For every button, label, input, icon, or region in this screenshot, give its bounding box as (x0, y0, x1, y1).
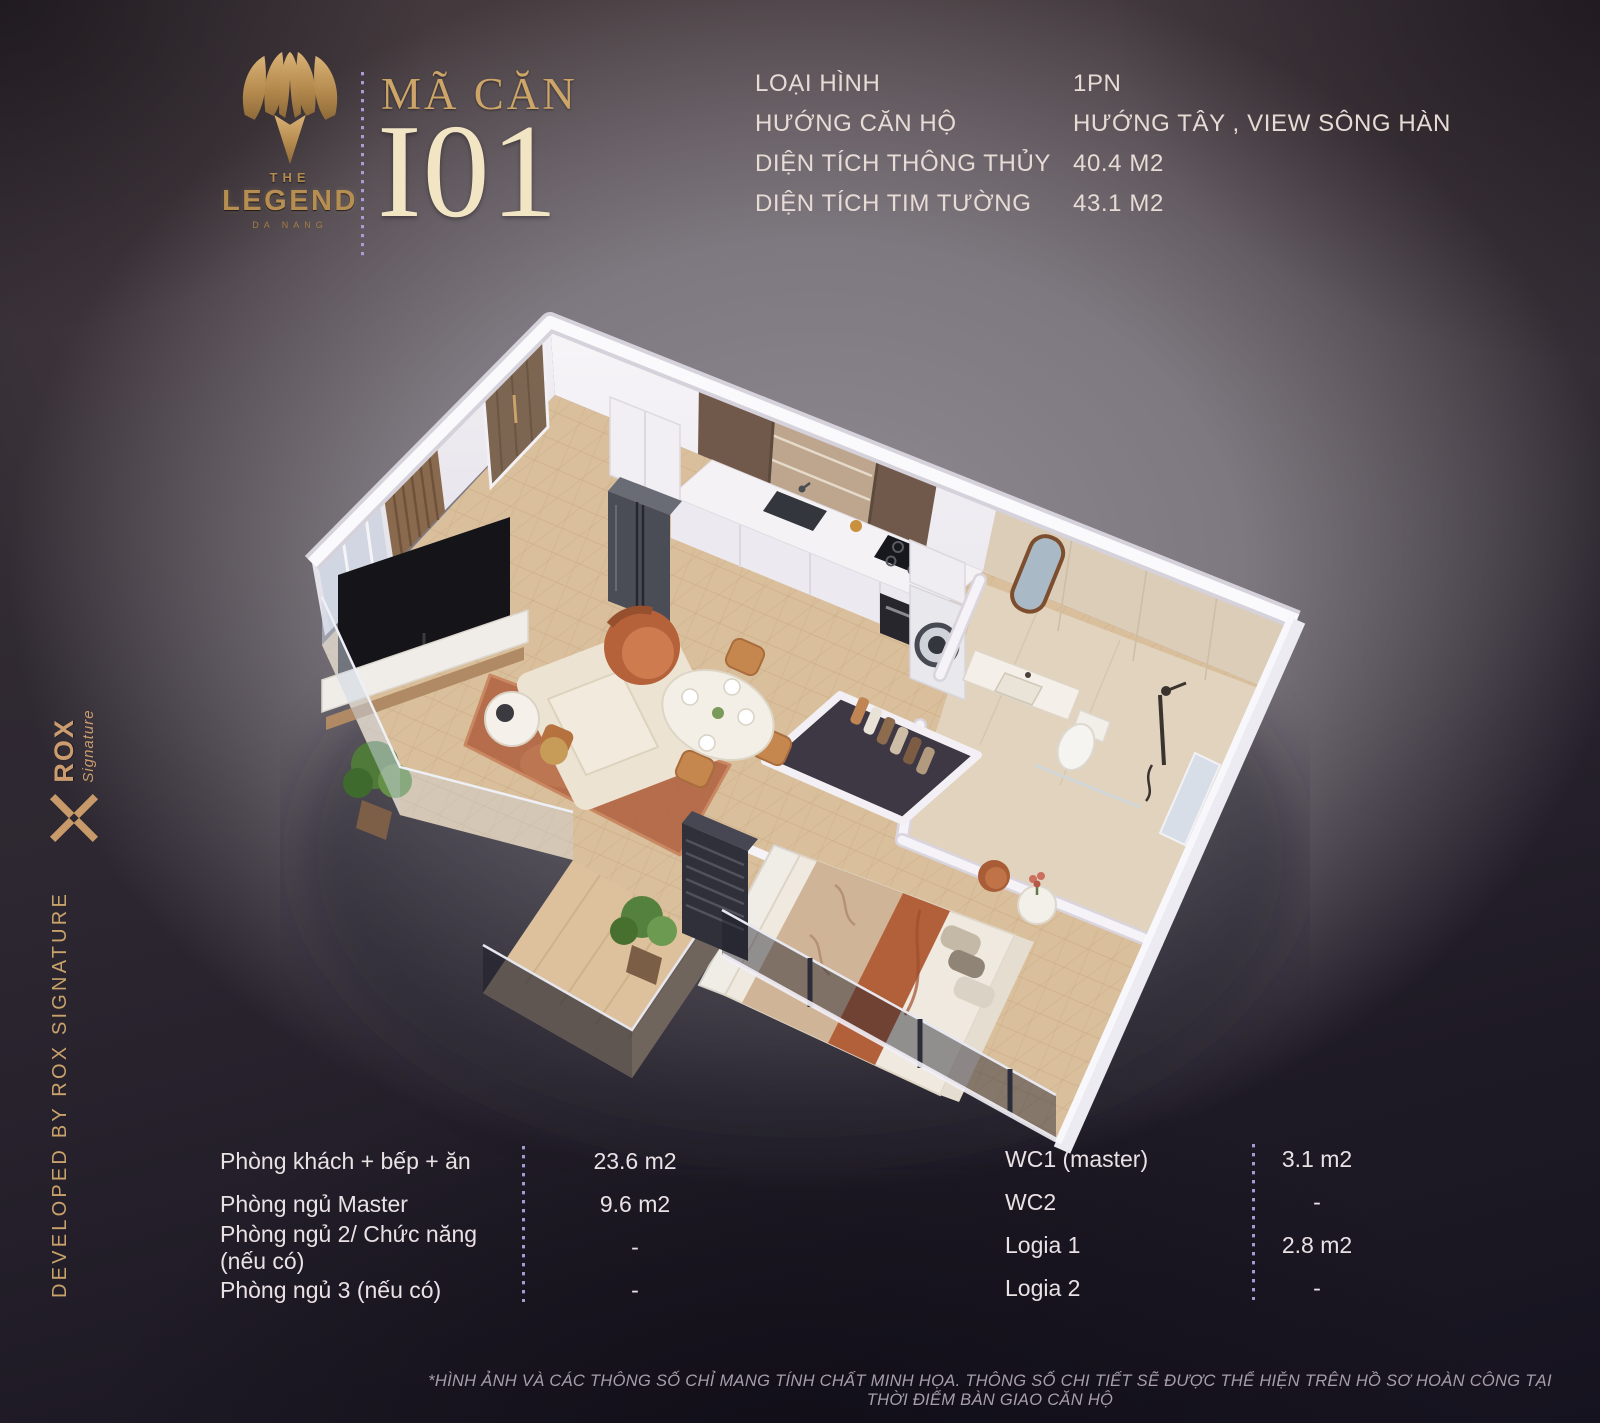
table-row: Logia 2- (1005, 1267, 1385, 1310)
room-area: - (1252, 1275, 1382, 1302)
legend-palm-icon (231, 50, 349, 168)
spec-value: 43.1 M2 (1073, 190, 1164, 218)
rox-name: ROX (51, 709, 78, 782)
unit-code: I01 (377, 96, 559, 246)
spec-label: HƯỚNG CĂN HỘ (755, 110, 1073, 138)
rox-logo: ROX Signature (32, 688, 116, 864)
spec-value: 1PN (1073, 70, 1122, 98)
room-area: 9.6 m2 (520, 1191, 750, 1218)
table-row: Phòng ngủ 3 (nếu có)- (220, 1269, 760, 1312)
brand-the: THE (220, 170, 360, 185)
rox-x-icon (49, 793, 99, 843)
dotted-divider (1252, 1144, 1255, 1300)
room-label: Logia 1 (1005, 1232, 1252, 1259)
room-label: WC2 (1005, 1189, 1252, 1216)
room-label: Phòng ngủ 2/ Chức năng (nếu có) (220, 1221, 520, 1275)
spec-value: 40.4 M2 (1073, 150, 1164, 178)
area-table-right: WC1 (master)3.1 m2 WC2- Logia 12.8 m2 Lo… (1005, 1138, 1385, 1310)
dotted-divider (361, 72, 364, 258)
table-row: Logia 12.8 m2 (1005, 1224, 1385, 1267)
room-area: 3.1 m2 (1252, 1146, 1382, 1173)
table-row: Phòng khách + bếp + ăn23.6 m2 (220, 1140, 760, 1183)
room-label: Phòng khách + bếp + ăn (220, 1148, 520, 1175)
dotted-divider (522, 1146, 525, 1302)
spec-table: LOẠI HÌNH1PN HƯỚNG CĂN HỘHƯỚNG TÂY , VIE… (755, 64, 1451, 224)
spec-label: LOẠI HÌNH (755, 70, 1073, 98)
area-table-left: Phòng khách + bếp + ăn23.6 m2 Phòng ngủ … (220, 1140, 760, 1312)
fruit-bowl (850, 520, 862, 532)
room-area: - (520, 1234, 750, 1261)
table-row: WC2- (1005, 1181, 1385, 1224)
spec-label: DIỆN TÍCH THÔNG THỦY (755, 150, 1073, 178)
coffee-table (485, 692, 539, 746)
table-row: Phòng ngủ 2/ Chức năng (nếu có)- (220, 1226, 760, 1269)
room-area: - (1252, 1189, 1382, 1216)
room-area: 2.8 m2 (1252, 1232, 1382, 1259)
rox-sub: Signature (80, 709, 97, 782)
developed-by-text: DEVELOPED BY ROX SIGNATURE (44, 894, 76, 1298)
room-label: Phòng ngủ 3 (nếu có) (220, 1277, 520, 1304)
side-table (540, 737, 568, 765)
disclaimer-text: *HÌNH ẢNH VÀ CÁC THÔNG SỐ CHỈ MANG TÍNH … (410, 1372, 1570, 1410)
brand-city: DA NANG (220, 220, 360, 230)
spec-label: DIỆN TÍCH TIM TƯỜNG (755, 190, 1073, 218)
floorplan-3d-render (280, 295, 1310, 1170)
room-label: Phòng ngủ Master (220, 1191, 520, 1218)
room-label: WC1 (master) (1005, 1146, 1252, 1173)
room-area: - (520, 1277, 750, 1304)
room-area: 23.6 m2 (520, 1148, 750, 1175)
legend-brand-logo: THE LEGEND DA NANG (220, 50, 360, 230)
table-row: WC1 (master)3.1 m2 (1005, 1138, 1385, 1181)
spec-value: HƯỚNG TÂY , VIEW SÔNG HÀN (1073, 110, 1451, 138)
room-label: Logia 2 (1005, 1275, 1252, 1302)
brand-name: LEGEND (220, 185, 360, 218)
